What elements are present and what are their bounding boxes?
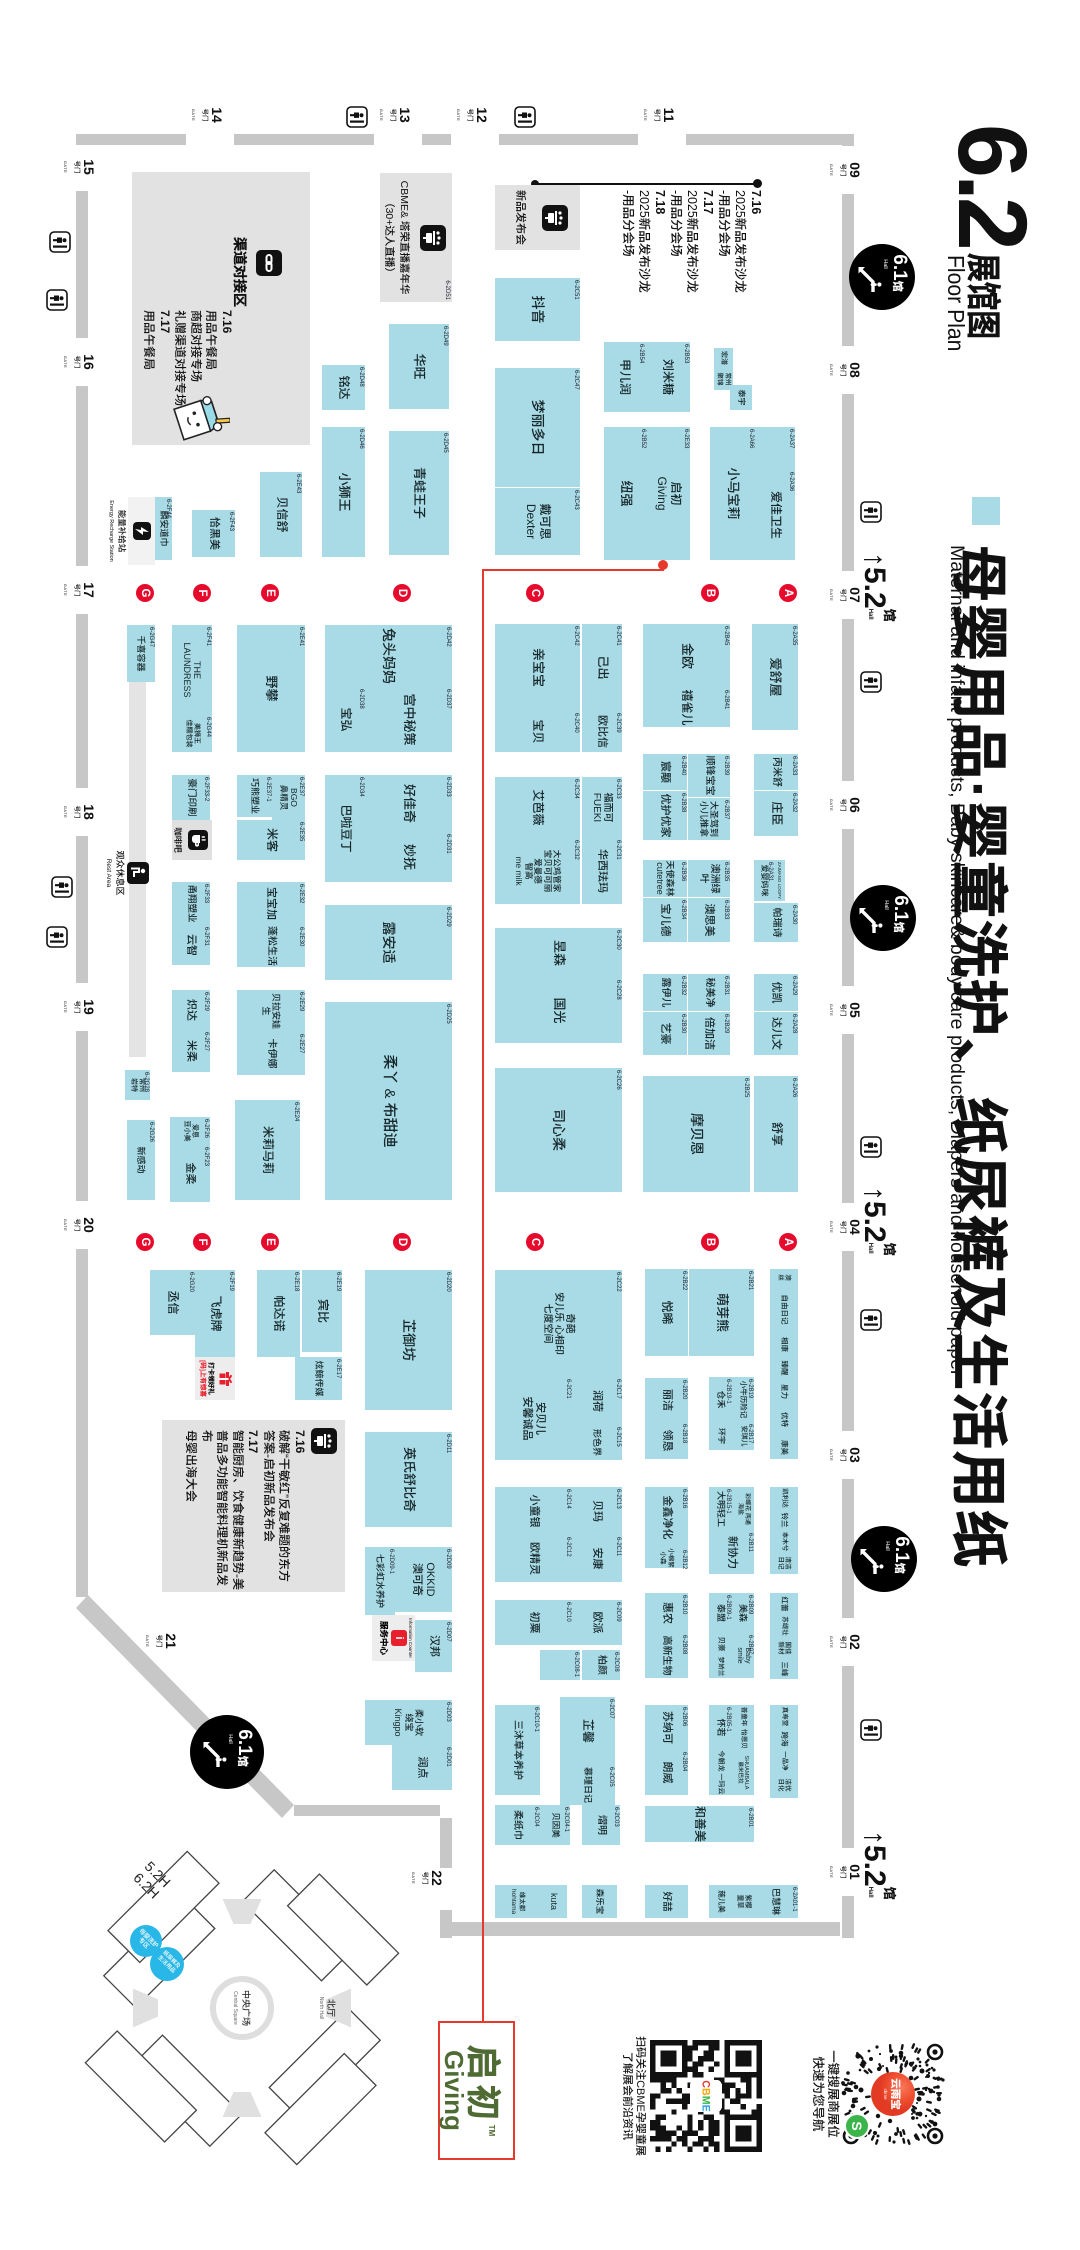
svg-text:cbme: cbme (883, 2088, 888, 2100)
svg-text:云雨宝: 云雨宝 (889, 2078, 902, 2110)
svg-text:中央广场: 中央广场 (241, 1990, 251, 2026)
svg-text:S: S (849, 2121, 865, 2130)
svg-text:北厅: 北厅 (326, 1999, 336, 2017)
svg-text:North Hall: North Hall (318, 1997, 324, 2019)
svg-text:Central Square: Central Square (232, 1991, 238, 2025)
svg-text:CBME: CBME (699, 2080, 711, 2111)
